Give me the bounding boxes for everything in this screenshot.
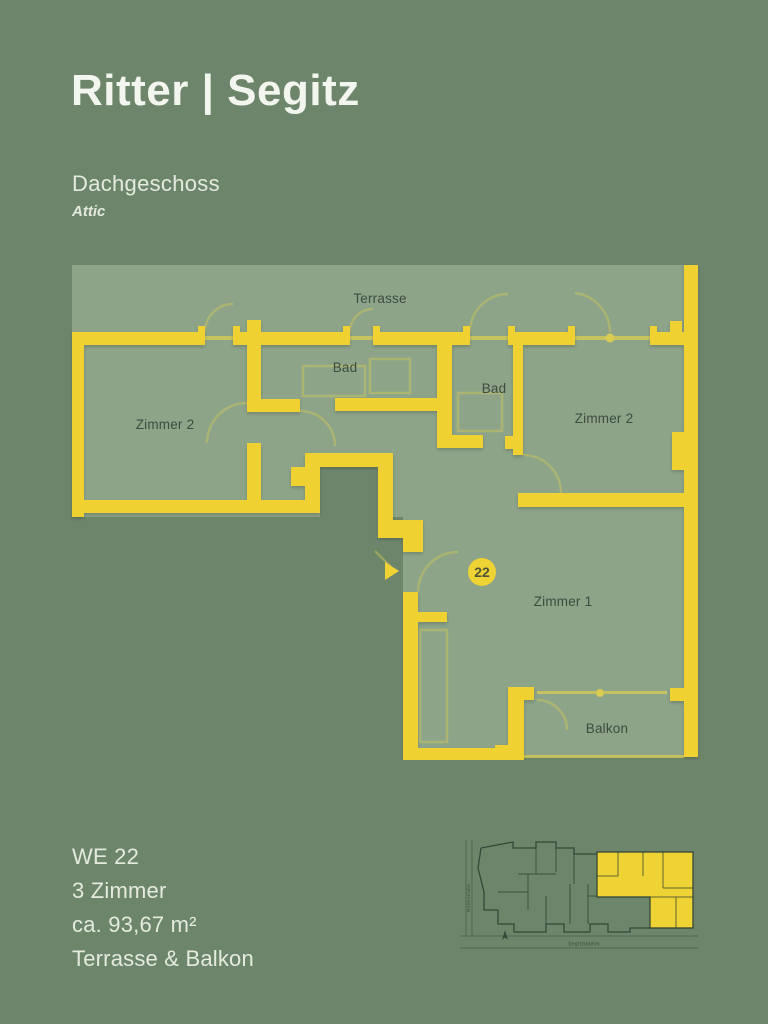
room-label-bath-1: Bad (333, 360, 358, 375)
site-plan: Segitzdamm Ritterstraße (458, 836, 703, 954)
room-label-terrace: Terrasse (353, 291, 406, 306)
compass-icon (502, 930, 508, 940)
room-label-room-2-left: Zimmer 2 (136, 417, 195, 432)
unit-info: WE 22 3 Zimmer ca. 93,67 m² Terrasse & B… (72, 840, 254, 976)
room-label-bath-2: Bad (482, 381, 507, 396)
room-label-room-1: Zimmer 1 (534, 594, 593, 609)
street-label-left: Ritterstraße (466, 884, 471, 912)
street-label-bottom: Segitzdamm (568, 942, 600, 948)
floor-title: Dachgeschoss (72, 171, 220, 197)
site-plan-highlighted-unit (597, 852, 693, 928)
stairwell-void (320, 467, 378, 517)
floor-subtitle: Attic (72, 203, 105, 220)
unit-room-count: 3 Zimmer (72, 874, 254, 908)
room-label-room-2-right: Zimmer 2 (575, 411, 634, 426)
unit-area: ca. 93,67 m² (72, 908, 254, 942)
unit-badge-number: 22 (474, 564, 490, 580)
brand-logo: Ritter | Segitz (71, 66, 360, 116)
unit-id: WE 22 (72, 840, 254, 874)
floor-plan: 22 Terrasse Bad Bad Zimmer 2 Zimmer 2 Zi… (70, 263, 700, 760)
entry-arrow-icon (385, 562, 399, 580)
unit-badge: 22 (468, 558, 496, 586)
unit-outdoor: Terrasse & Balkon (72, 942, 254, 976)
room-label-balcony: Balkon (586, 721, 628, 736)
